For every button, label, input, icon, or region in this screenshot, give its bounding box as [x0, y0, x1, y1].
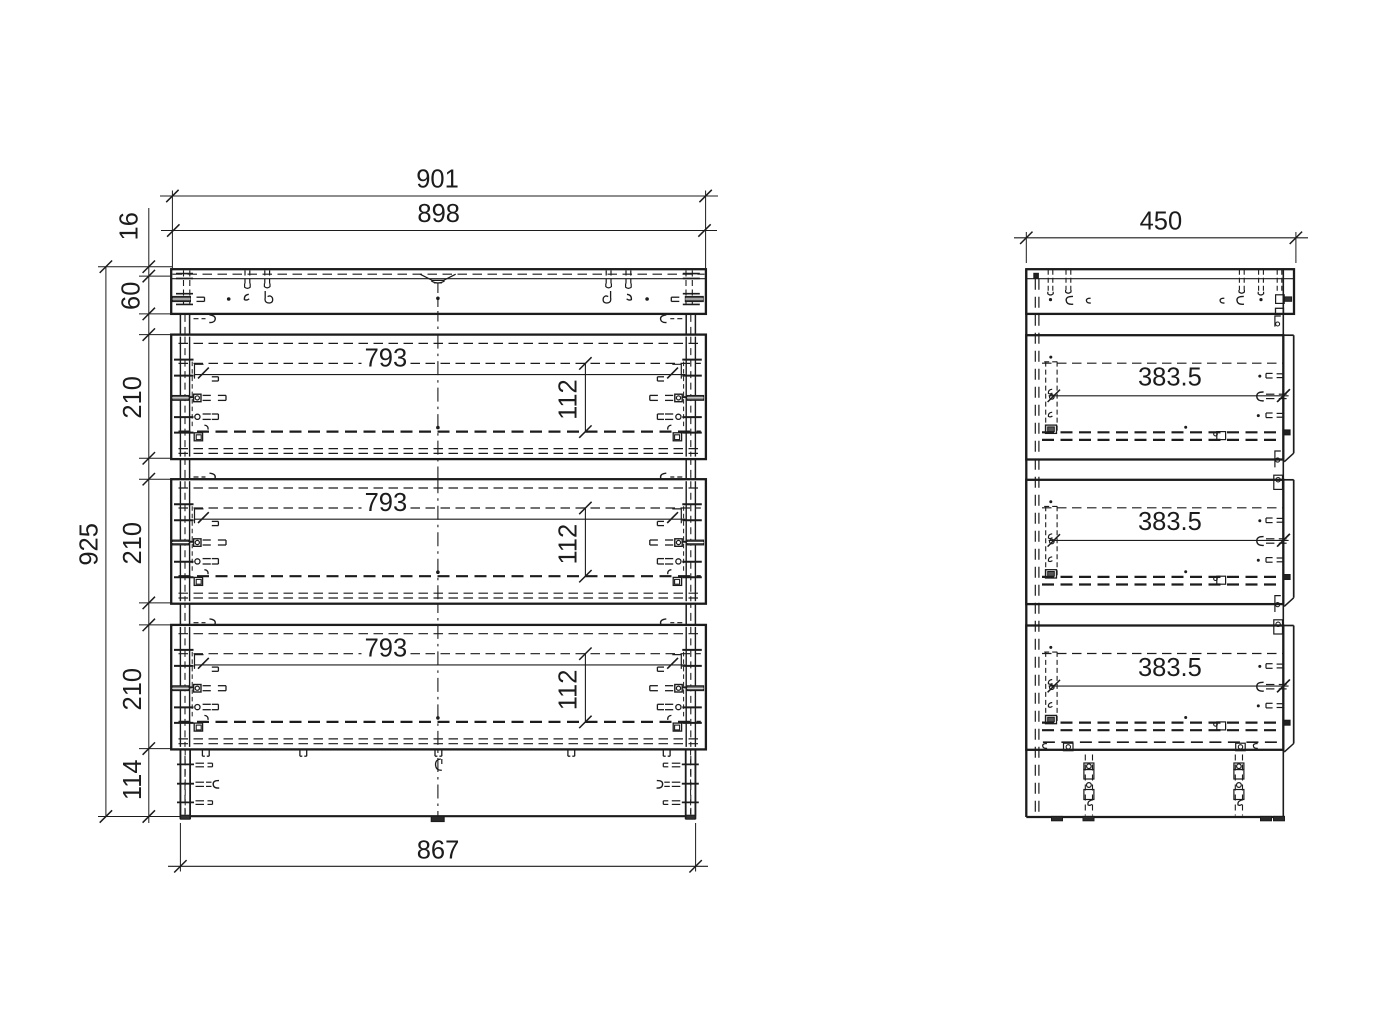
svg-text:867: 867 — [417, 836, 460, 864]
svg-text:210: 210 — [119, 522, 147, 565]
svg-text:901: 901 — [416, 165, 459, 193]
svg-text:114: 114 — [119, 759, 147, 800]
svg-text:60: 60 — [118, 282, 146, 310]
svg-text:210: 210 — [119, 668, 147, 711]
svg-text:898: 898 — [417, 200, 460, 228]
svg-text:925: 925 — [76, 523, 104, 566]
svg-text:450: 450 — [1140, 207, 1183, 235]
svg-text:210: 210 — [119, 376, 147, 419]
svg-text:16: 16 — [116, 212, 144, 240]
